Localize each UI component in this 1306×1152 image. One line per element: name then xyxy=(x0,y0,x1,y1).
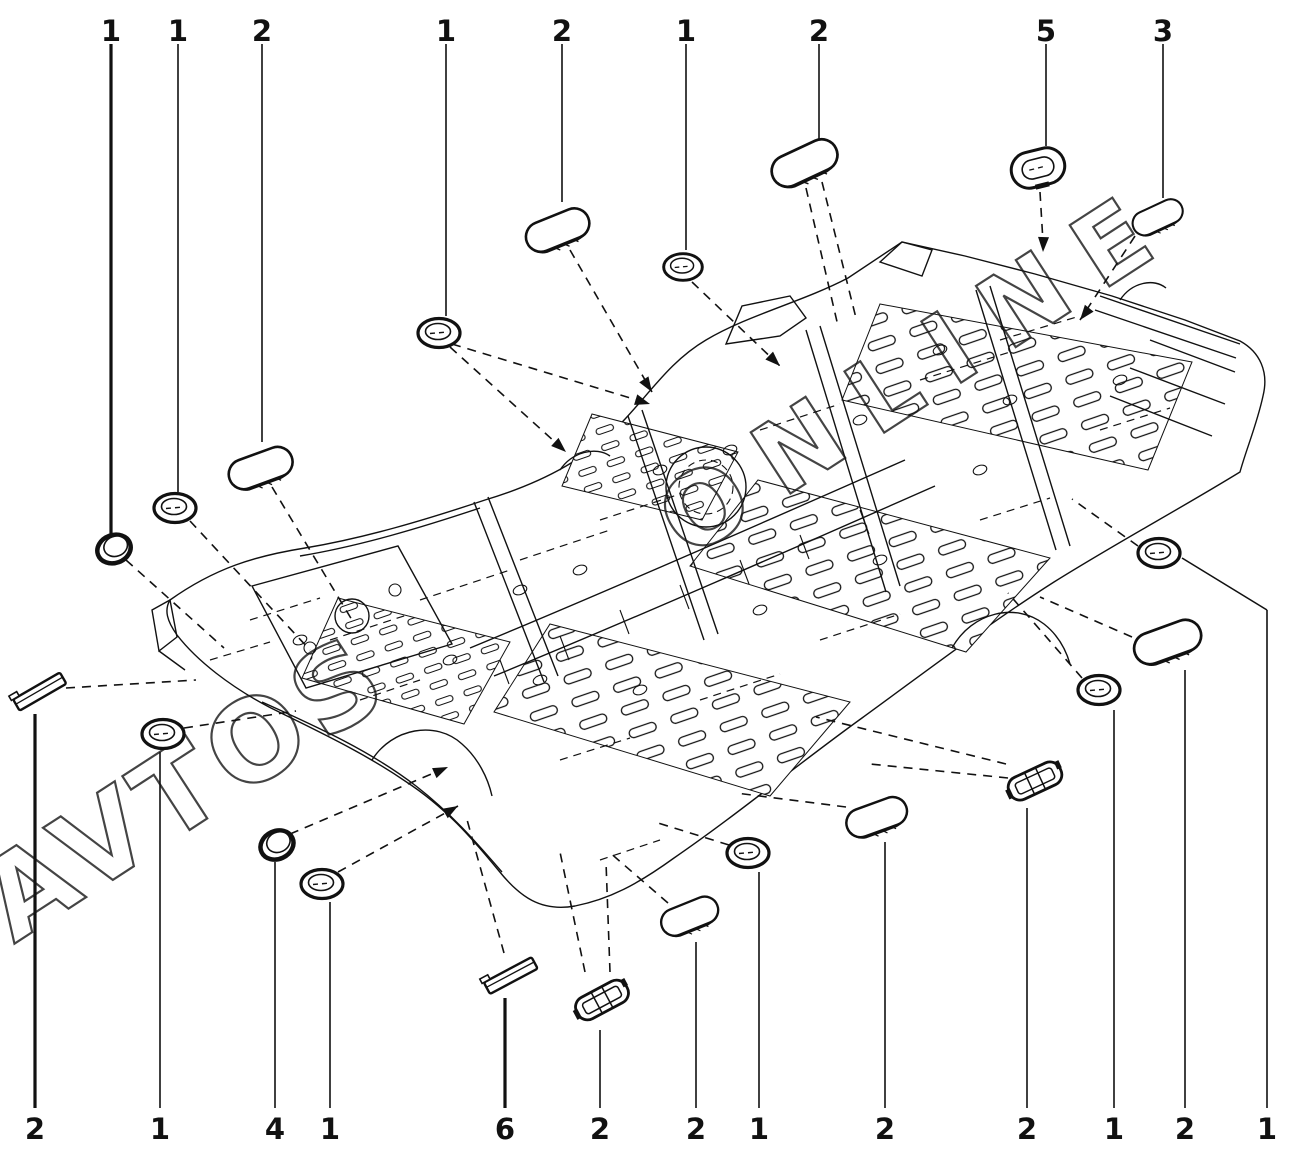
capsule-plug xyxy=(569,975,634,1025)
parts-diagram-figure: AVTOSONLINE 1121212532141622122121 xyxy=(0,0,1306,1152)
leader-line-dashed xyxy=(816,717,1006,764)
callout-top-1: 1 xyxy=(676,14,696,48)
callout-numbers-layer: 1121212532141622122121 xyxy=(25,14,1277,1146)
oval-plug xyxy=(842,793,912,845)
callout-bottom-1: 1 xyxy=(150,1112,170,1146)
leader-line xyxy=(1182,558,1267,610)
callout-bottom-1: 1 xyxy=(749,1112,769,1146)
ring-plug xyxy=(1078,676,1120,705)
leader-arrowhead xyxy=(432,762,450,778)
leader-line-dashed xyxy=(822,182,856,318)
ring-plug xyxy=(142,720,184,749)
callout-top-2: 2 xyxy=(809,14,829,48)
leader-line-dashed xyxy=(606,862,610,972)
leader-line-dashed xyxy=(608,851,668,903)
leader-line-dashed xyxy=(452,344,650,404)
callout-bottom-2: 2 xyxy=(686,1112,706,1146)
oval-ring-plug xyxy=(1007,144,1069,194)
oval-plug xyxy=(1130,615,1208,673)
watermark-text: AVTOS xyxy=(0,608,413,966)
leader-line-dashed xyxy=(806,188,838,326)
ring-plug xyxy=(301,870,343,899)
underbody-plugs-diagram: AVTOSONLINE 1121212532141622122121 xyxy=(0,0,1306,1152)
leader-line-dashed xyxy=(190,521,310,650)
callout-top-2: 2 xyxy=(252,14,272,48)
callout-bottom-1: 1 xyxy=(1257,1112,1277,1146)
leader-line-dashed xyxy=(570,250,652,392)
ring-plug xyxy=(664,254,703,281)
leader-line-dashed xyxy=(466,816,504,953)
callout-bottom-2: 2 xyxy=(875,1112,895,1146)
leader-line-dashed xyxy=(338,806,458,872)
oval-plug xyxy=(766,134,844,196)
callout-top-2: 2 xyxy=(552,14,572,48)
leader-line-dashed xyxy=(1072,499,1138,546)
leader-line-dashed xyxy=(126,560,224,648)
leader-line-dashed xyxy=(66,680,196,688)
callout-bottom-1: 1 xyxy=(320,1112,340,1146)
callout-bottom-6: 6 xyxy=(495,1112,515,1146)
callout-bottom-2: 2 xyxy=(1175,1112,1195,1146)
leader-arrowhead xyxy=(551,438,570,456)
callout-bottom-2: 2 xyxy=(590,1112,610,1146)
callout-bottom-4: 4 xyxy=(265,1112,285,1146)
ring-plug xyxy=(418,319,460,348)
callout-top-5: 5 xyxy=(1036,14,1056,48)
callout-top-1: 1 xyxy=(436,14,456,48)
oval-plug xyxy=(657,893,724,944)
callout-top-3: 3 xyxy=(1153,14,1173,48)
oval-plug xyxy=(225,443,299,498)
leader-arrowhead xyxy=(442,801,460,818)
callout-bottom-1: 1 xyxy=(1104,1112,1124,1146)
leader-line-dashed xyxy=(870,764,1008,778)
leader-arrowhead xyxy=(765,352,783,370)
callout-bottom-2: 2 xyxy=(1017,1112,1037,1146)
strip-plug xyxy=(480,953,538,995)
oval-plug xyxy=(521,204,595,261)
ring-plug xyxy=(727,839,769,868)
capsule-plug xyxy=(1002,757,1067,805)
ring-plug xyxy=(154,494,196,523)
leader-line-dashed xyxy=(450,347,566,452)
leader-line-dashed xyxy=(560,852,585,972)
strip-plug xyxy=(9,668,66,712)
callout-bottom-2: 2 xyxy=(25,1112,45,1146)
ring-plug xyxy=(1138,539,1180,568)
disc-plug xyxy=(256,825,299,865)
callout-top-1: 1 xyxy=(168,14,188,48)
leader-line-dashed xyxy=(1040,597,1132,637)
callout-top-1: 1 xyxy=(101,14,121,48)
